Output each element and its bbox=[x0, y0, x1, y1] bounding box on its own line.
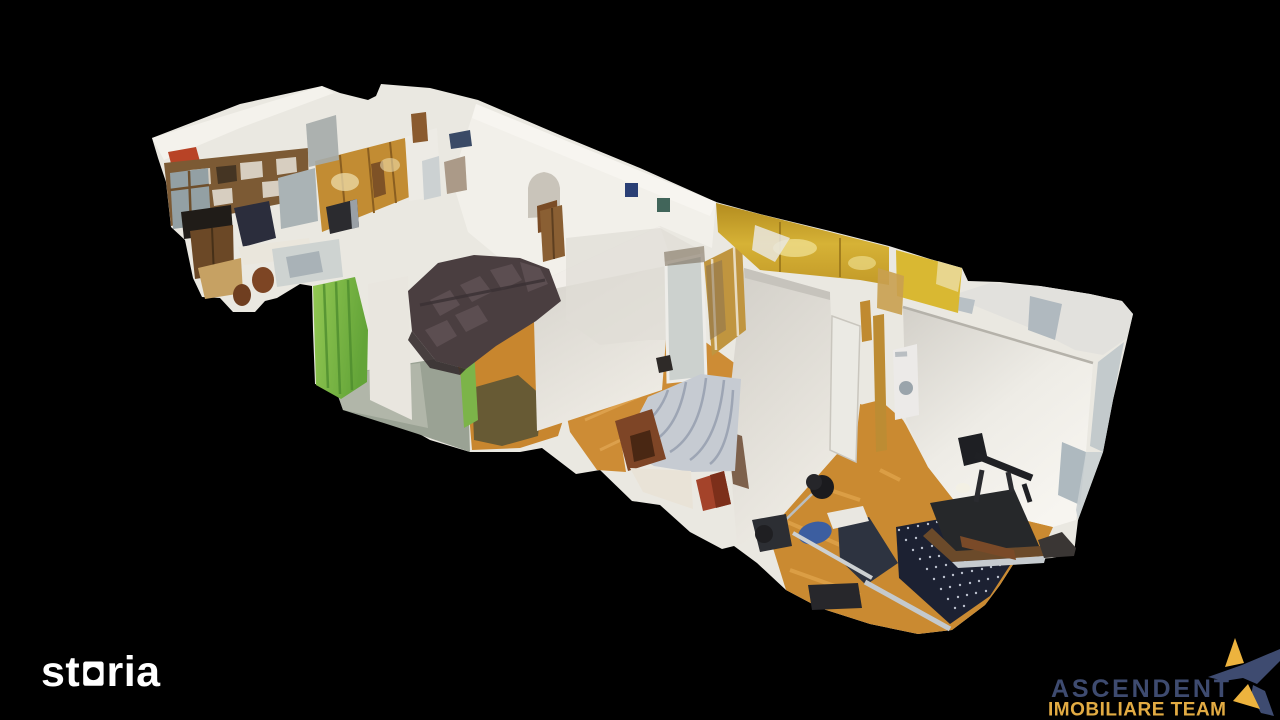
svg-text:st: st bbox=[41, 648, 80, 696]
svg-text:ria: ria bbox=[107, 648, 162, 696]
svg-text:IMOBILIARE TEAM: IMOBILIARE TEAM bbox=[1048, 700, 1227, 720]
